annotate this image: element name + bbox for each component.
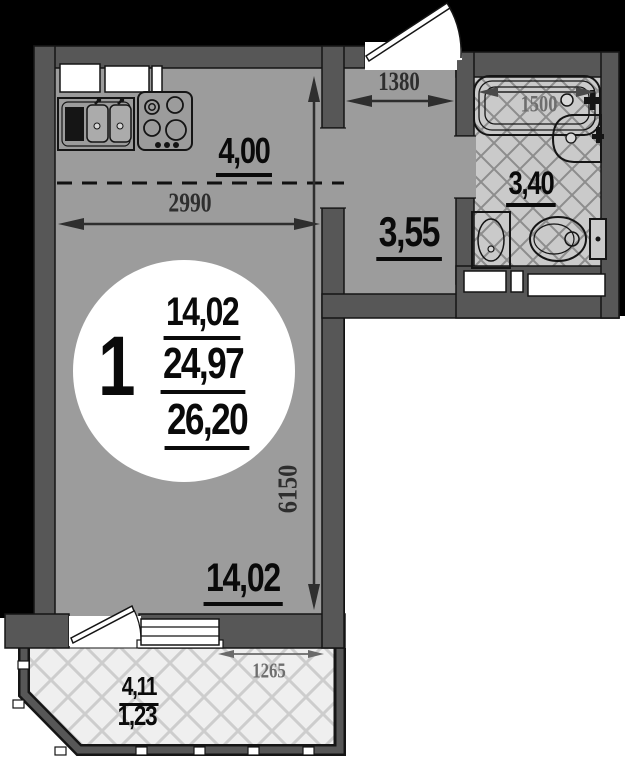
living-room-area-label: 14,02 [204, 558, 283, 598]
dim-1500-label: 1500 [521, 93, 558, 116]
bathroom-area-label: 3,40 [506, 167, 556, 199]
balcony-floor [28, 648, 334, 748]
vent-shafts [464, 271, 605, 296]
balcony-window [137, 619, 223, 648]
floor-plan: 4,00 2990 1380 1500 3,55 3,40 1 14,02 24… [0, 0, 625, 768]
cooktop-icon [138, 92, 192, 150]
dim-2990-label: 2990 [168, 190, 211, 217]
hallway-area-label: 3,55 [376, 211, 441, 253]
dim-1265-label: 1265 [252, 661, 286, 682]
unit-living-area: 14,02 [164, 292, 241, 332]
unit-total-area: 26,20 [165, 398, 250, 442]
unit-room-count: 1 [98, 324, 134, 408]
balcony-area-label: 4,11 [119, 673, 158, 699]
unit-additional-area: 24,97 [161, 342, 246, 386]
kitchen-cabinets [60, 64, 162, 92]
dim-1380-label: 1380 [378, 69, 420, 95]
dim-6150-label: 6150 [275, 465, 302, 514]
kitchen-area-label: 4,00 [216, 133, 272, 169]
kitchen-sink-icon [58, 98, 134, 150]
balcony-reduced-area-label: 1,23 [118, 702, 157, 730]
